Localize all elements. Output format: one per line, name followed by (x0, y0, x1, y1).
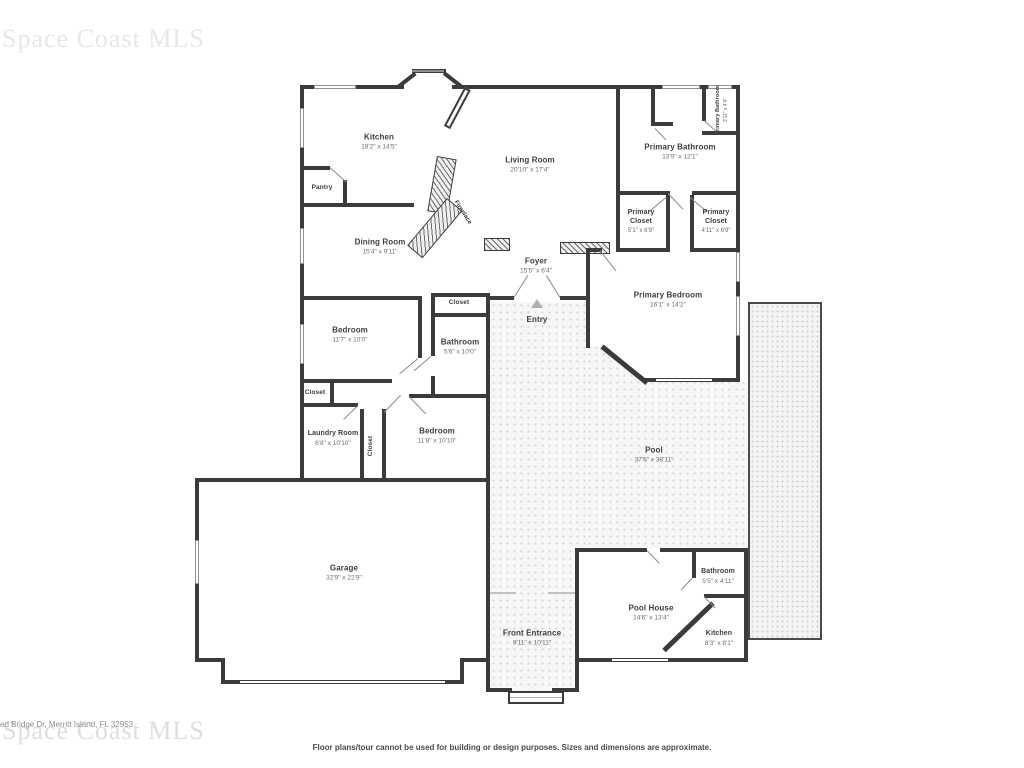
disclaimer-text: Floor plans/tour cannot be used for buil… (0, 743, 1024, 752)
wall (300, 203, 414, 207)
porch-edge (548, 592, 575, 594)
room-label-bedroom-left: Bedroom11'7" x 10'0" (332, 325, 368, 344)
room-label-living-room: Living Room20'10" x 17'4" (505, 155, 555, 174)
room-label-small-closet: Closet (305, 389, 325, 397)
wall (431, 293, 435, 356)
door-swing (681, 578, 693, 590)
room-label-pool-house: Pool House14'6" x 13'4" (628, 603, 673, 622)
wall (694, 548, 748, 552)
door-swing (384, 395, 401, 413)
window (300, 228, 304, 264)
room-label-hall-bathroom: Bathroom5'6" x 10'0" (441, 337, 480, 356)
pool-deck-area (748, 302, 822, 640)
watermark-top: Space Coast MLS (2, 24, 205, 54)
wall (616, 191, 670, 195)
wall (195, 478, 490, 482)
window (300, 324, 304, 364)
door-swing (514, 275, 529, 298)
room-label-garage: Garage32'9" x 22'9" (326, 563, 362, 582)
wall (660, 548, 696, 552)
door-swing (399, 358, 418, 374)
angled-window (444, 87, 471, 129)
wall (575, 548, 647, 552)
wall (651, 85, 655, 125)
window (412, 70, 444, 72)
room-label-hall-closet: Closet (449, 299, 469, 307)
room-label-primary-closet-right: Primary Closet4'11" x 6'9" (693, 209, 739, 235)
floor-plan: Kitchen18'2" x 14'5" Pantry Dining Room1… (0, 0, 1024, 768)
wall (300, 403, 358, 407)
entry-courtyard-area (490, 302, 590, 548)
room-label-kitchen: Kitchen18'2" x 14'5" (361, 132, 397, 151)
sliding-door (612, 659, 668, 661)
window (736, 296, 740, 336)
room-label-primary-closet-left: Primary Closet5'1" x 6'9" (618, 209, 664, 235)
wall (382, 409, 386, 480)
entry-arrow-icon (531, 299, 543, 308)
wall (431, 313, 490, 317)
room-label-dining-room: Dining Room15'4" x 9'11" (355, 237, 406, 256)
room-label-pool-house-kitchen: Kitchen8'3" x 8'1" (705, 630, 733, 648)
wall (486, 293, 490, 478)
window (195, 540, 199, 584)
wall (431, 293, 490, 297)
wall-gap-patch (740, 302, 748, 382)
room-label-pantry: Pantry (312, 184, 333, 192)
room-label-foyer: Foyer15'5" x 6'4" (520, 256, 552, 275)
window (300, 108, 304, 148)
room-label-primary-bedroom: Primary Bedroom16'1" x 14'2" (634, 290, 703, 309)
wall (418, 296, 422, 358)
wall (651, 122, 673, 126)
listing-address: ed Bridge Dr, Merritt Island, FL 32953 (0, 720, 133, 729)
wall (560, 296, 588, 300)
wall (300, 296, 422, 300)
wall (744, 548, 748, 662)
window (662, 85, 700, 89)
wall (692, 191, 740, 195)
room-label-bedroom-mid: Bedroom11'8" x 10'10" (418, 426, 457, 445)
wall (666, 195, 670, 252)
room-label-primary-bathroom-wc: Primary Bathroom3'11" x 4'4" (715, 85, 729, 135)
room-label-mid-closet: Closet (367, 436, 375, 456)
wall (702, 85, 706, 121)
room-label-primary-bathroom: Primary Bathroom13'9" x 12'1" (644, 142, 715, 161)
door-swing (330, 167, 347, 182)
door-swing (668, 193, 684, 210)
door-swing (655, 128, 667, 140)
door-swing (343, 405, 358, 420)
room-label-entry: Entry (527, 315, 548, 325)
door-swing (546, 275, 561, 298)
wall (704, 594, 748, 598)
window (736, 252, 740, 282)
room-label-pool-house-bathroom: Bathroom5'5" x 4'11" (701, 568, 735, 586)
sliding-door (656, 379, 712, 381)
room-label-front-entrance: Front Entrance9'11" x 10'11" (503, 628, 561, 647)
wall (431, 394, 490, 398)
wall (486, 478, 490, 692)
fireplace-hearth (484, 238, 510, 251)
wall (692, 548, 696, 578)
wall (409, 394, 433, 398)
wall (360, 409, 364, 480)
wall (397, 72, 417, 89)
porch-edge (490, 592, 516, 594)
wall (575, 548, 579, 692)
wall (300, 166, 330, 170)
room-label-pool: Pool37'6" x 38'11" (635, 445, 674, 464)
front-stoop-step (510, 697, 562, 698)
front-walkway-area (490, 548, 575, 692)
wall (488, 296, 514, 300)
wall (330, 381, 334, 405)
room-label-laundry-room: Laundry Room6'8" x 10'10" (308, 430, 359, 448)
window (314, 85, 356, 89)
garage-door (240, 681, 445, 683)
door-swing (409, 396, 426, 414)
door-swing (647, 550, 660, 564)
wall (692, 248, 740, 252)
wall (300, 379, 392, 383)
wall (620, 248, 668, 252)
